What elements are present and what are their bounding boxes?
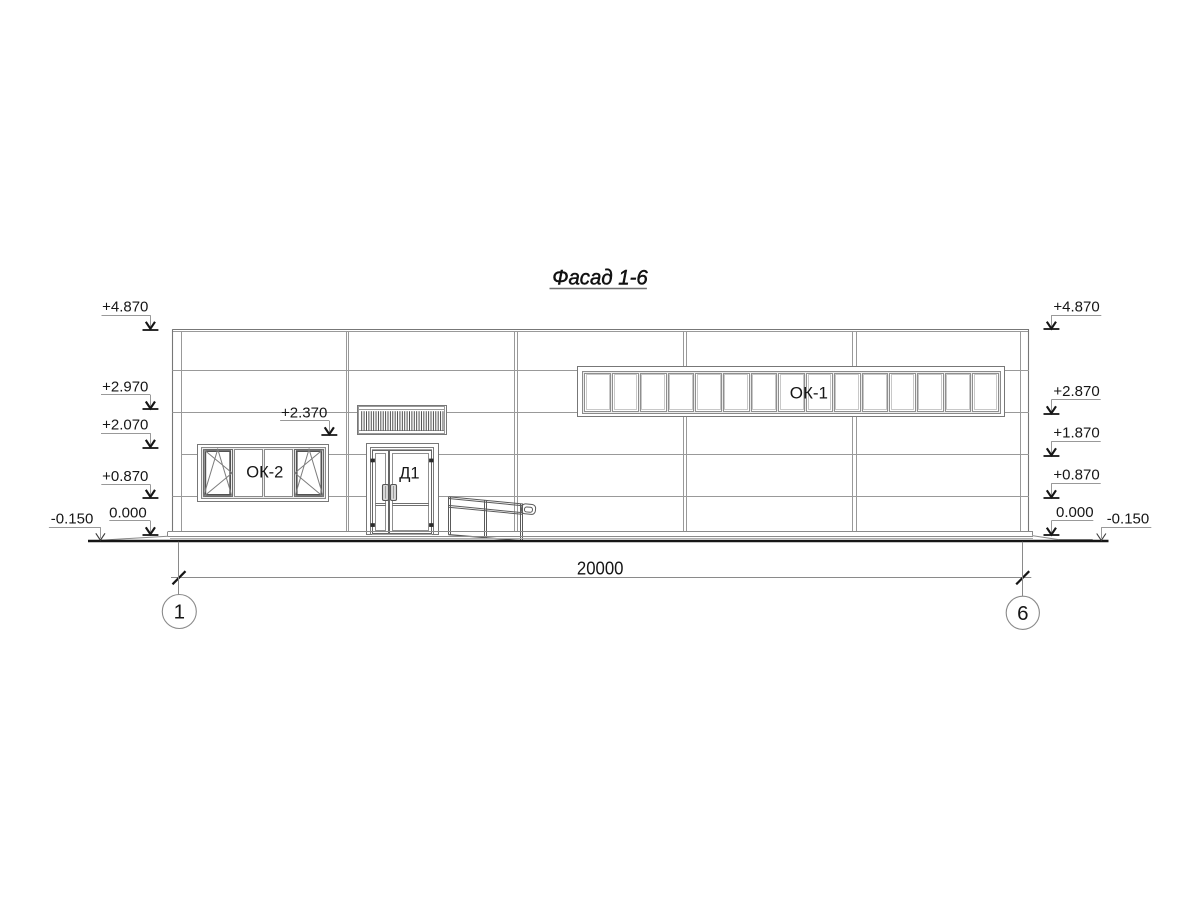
svg-text:6: 6 bbox=[1017, 602, 1028, 625]
svg-text:Д1: Д1 bbox=[399, 464, 419, 482]
svg-text:+0.870: +0.870 bbox=[1053, 467, 1099, 484]
svg-text:20000: 20000 bbox=[577, 559, 624, 579]
svg-text:-0.150: -0.150 bbox=[1107, 511, 1150, 528]
svg-text:Фасад 1-6: Фасад 1-6 bbox=[552, 266, 648, 289]
svg-text:+2.870: +2.870 bbox=[1053, 383, 1099, 400]
svg-text:+4.870: +4.870 bbox=[1053, 299, 1099, 316]
svg-text:ОК-2: ОК-2 bbox=[246, 463, 283, 481]
svg-text:+0.870: +0.870 bbox=[102, 468, 148, 485]
svg-text:-0.150: -0.150 bbox=[51, 511, 94, 528]
svg-text:+4.870: +4.870 bbox=[102, 299, 148, 316]
svg-text:+2.970: +2.970 bbox=[102, 378, 148, 395]
svg-text:+1.870: +1.870 bbox=[1053, 425, 1099, 442]
svg-text:0.000: 0.000 bbox=[109, 504, 147, 521]
svg-text:0.000: 0.000 bbox=[1056, 504, 1094, 521]
svg-text:1: 1 bbox=[174, 601, 185, 624]
svg-text:ОК-1: ОК-1 bbox=[790, 383, 828, 402]
svg-text:+2.370: +2.370 bbox=[281, 404, 327, 421]
svg-text:+2.070: +2.070 bbox=[102, 417, 148, 434]
